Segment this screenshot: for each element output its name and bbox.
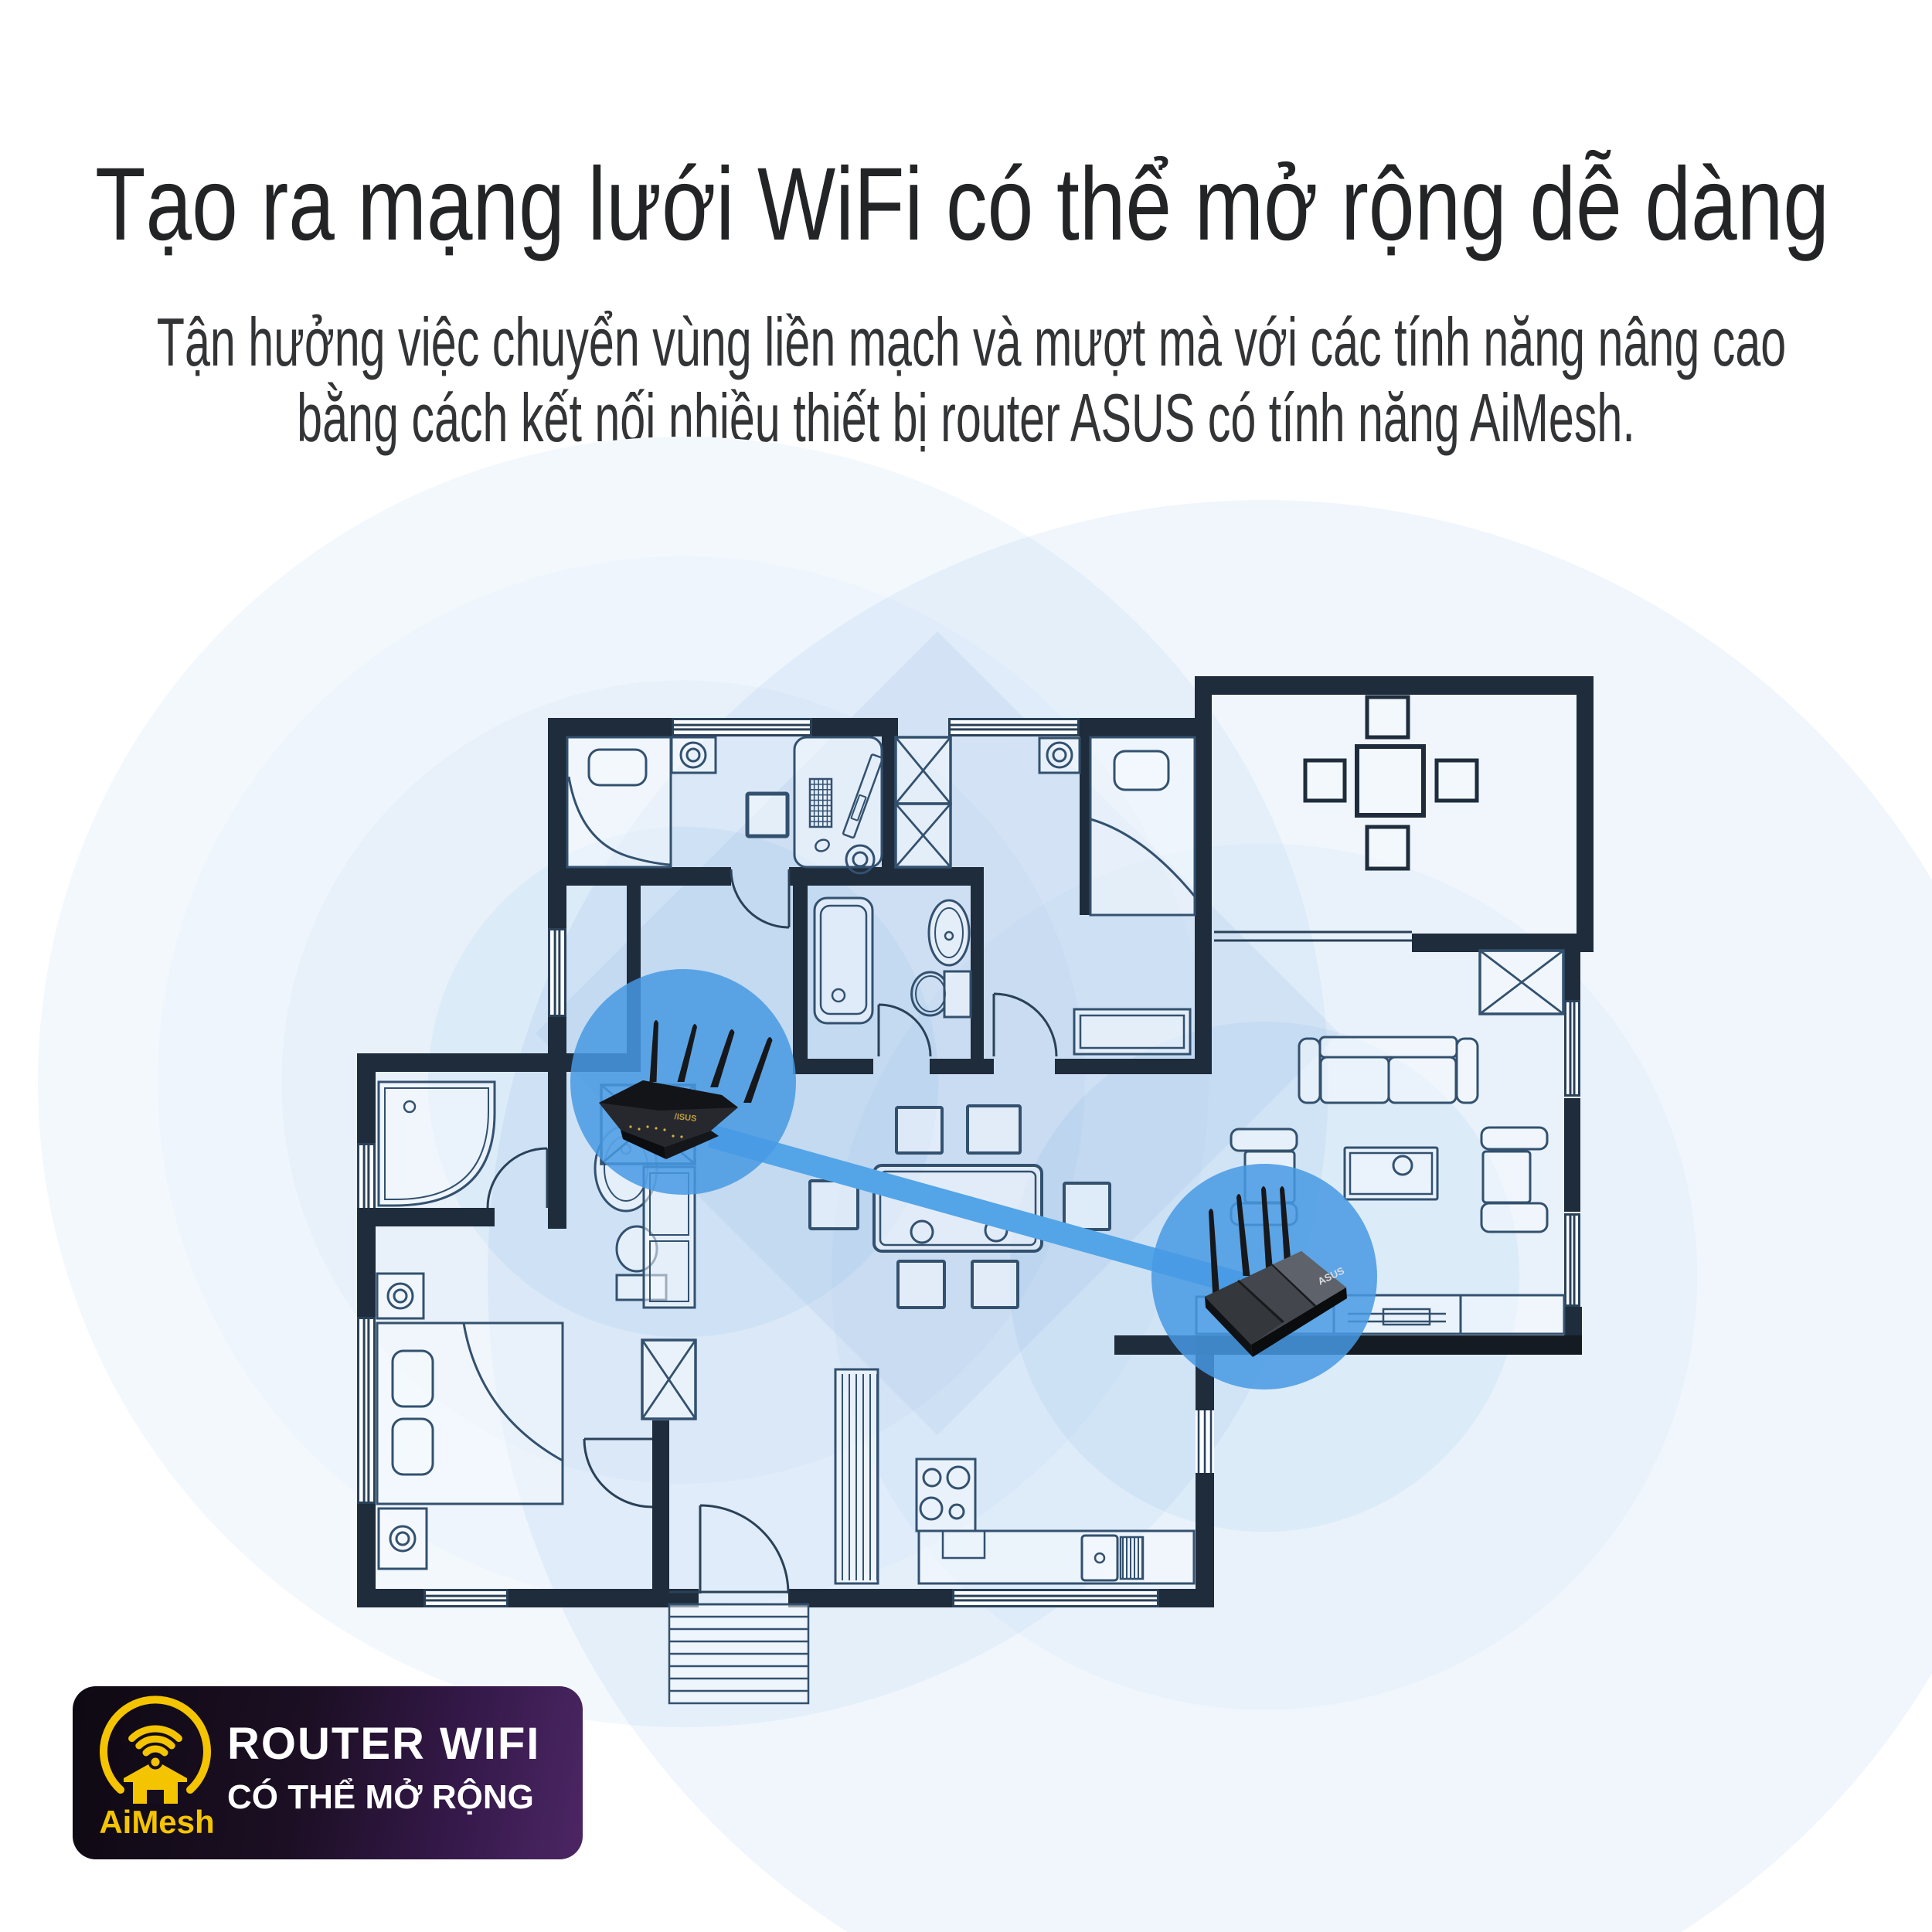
svg-text:Tạo ra mạng lưới WiFi có thể m: Tạo ra mạng lưới WiFi có thể mở rộng dễ …	[95, 146, 1829, 262]
svg-text:bằng cách kết nối nhiều thiết: bằng cách kết nối nhiều thiết bị router …	[297, 379, 1635, 456]
svg-text:Tận hưởng việc chuyển vùng liề: Tận hưởng việc chuyển vùng liền mạch và …	[157, 304, 1786, 380]
svg-text:AiMesh: AiMesh	[99, 1804, 214, 1840]
